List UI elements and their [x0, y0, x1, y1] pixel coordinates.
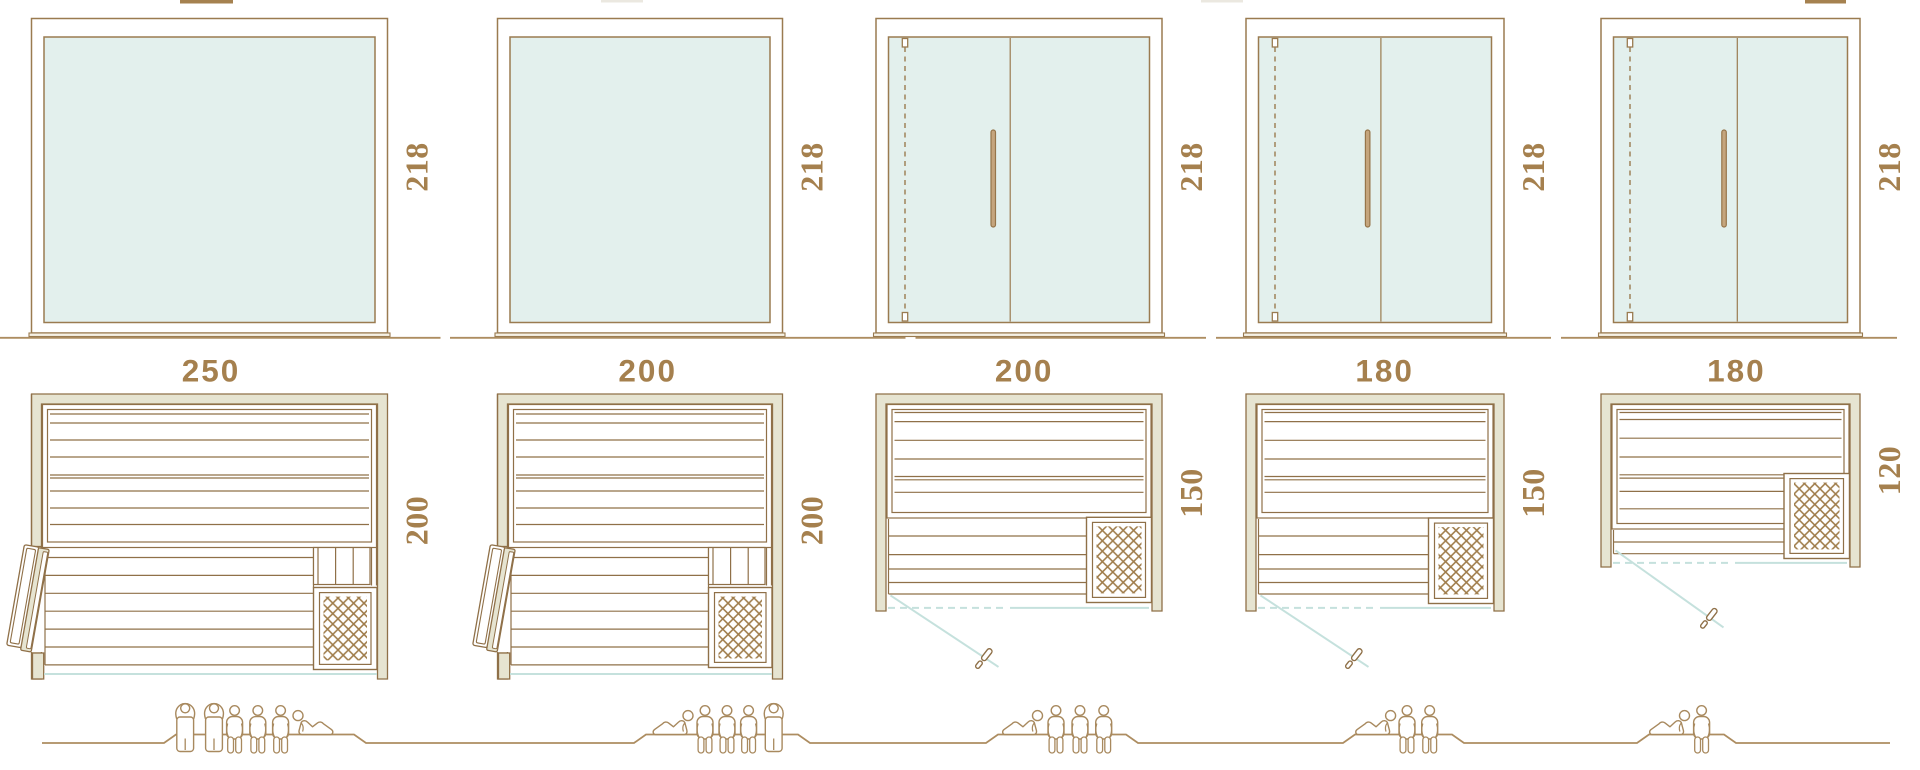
svg-text:200: 200: [794, 496, 830, 546]
svg-text:150: 150: [1173, 468, 1209, 518]
svg-text:200: 200: [995, 353, 1054, 389]
svg-text:120: 120: [1871, 446, 1907, 496]
svg-text:180: 180: [1355, 353, 1414, 389]
svg-text:218: 218: [1173, 142, 1209, 192]
svg-text:200: 200: [618, 353, 677, 389]
svg-text:218: 218: [1871, 142, 1907, 192]
svg-text:218: 218: [794, 142, 830, 192]
svg-text:218: 218: [399, 142, 435, 192]
svg-text:200: 200: [399, 496, 435, 546]
svg-text:250: 250: [182, 353, 241, 389]
svg-text:180: 180: [1707, 353, 1766, 389]
svg-text:150: 150: [1515, 468, 1551, 518]
svg-text:218: 218: [1515, 142, 1551, 192]
